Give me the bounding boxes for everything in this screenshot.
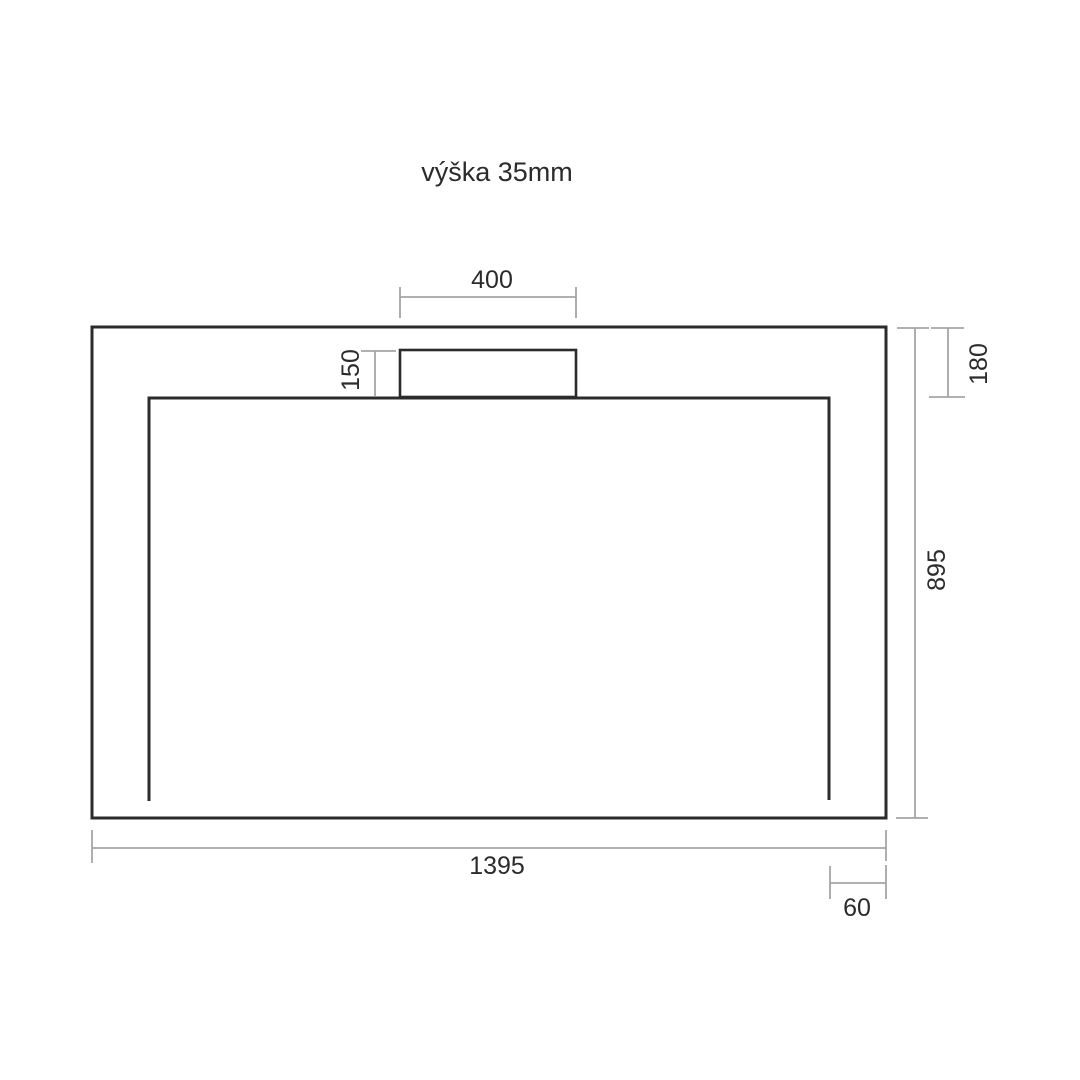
dim-label-right-inset: 60 [843, 894, 871, 922]
dim-drain-width: 400 [400, 266, 576, 318]
inner-recess-outline [149, 398, 829, 801]
drain-cover-rectangle [400, 350, 576, 397]
shower-tray-drawing: výška 35mm 400 150 180 [0, 0, 1080, 1080]
dim-label-drain-width: 400 [471, 266, 513, 294]
drawing-title: výška 35mm [421, 157, 573, 187]
outer-rectangle [92, 327, 886, 818]
dim-right-inset: 60 [830, 865, 886, 922]
dim-label-overall-width: 1395 [469, 852, 525, 880]
technical-drawing-page: výška 35mm 400 150 180 [0, 0, 1080, 1080]
dim-drain-offset: 150 [337, 349, 396, 396]
shower-tray-outline [92, 327, 886, 818]
dim-label-drain-offset: 150 [337, 349, 365, 391]
dim-overall-height: 895 [896, 328, 951, 818]
dim-top-inset: 180 [929, 328, 993, 397]
dim-label-overall-height: 895 [923, 549, 951, 591]
dim-label-top-inset: 180 [965, 343, 993, 385]
dim-overall-width: 1395 [92, 830, 886, 880]
